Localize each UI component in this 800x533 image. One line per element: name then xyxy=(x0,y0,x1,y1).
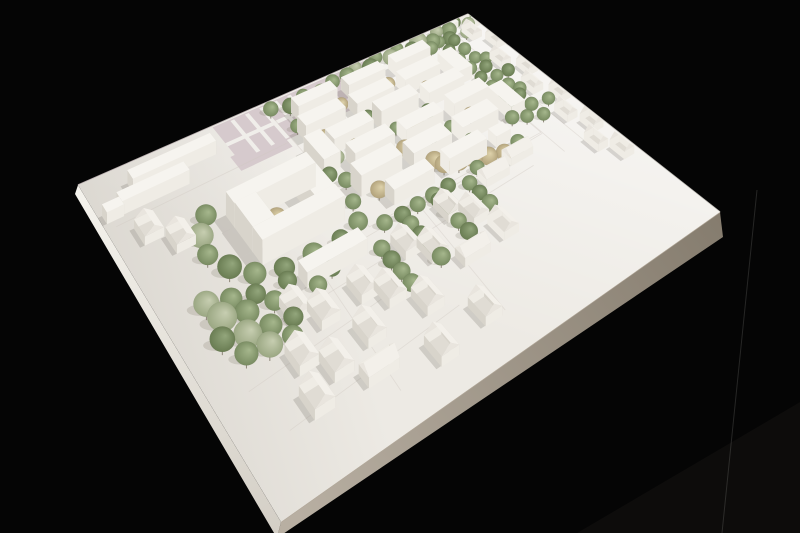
model-photo-svg xyxy=(0,0,800,533)
photo-frame xyxy=(0,0,800,533)
